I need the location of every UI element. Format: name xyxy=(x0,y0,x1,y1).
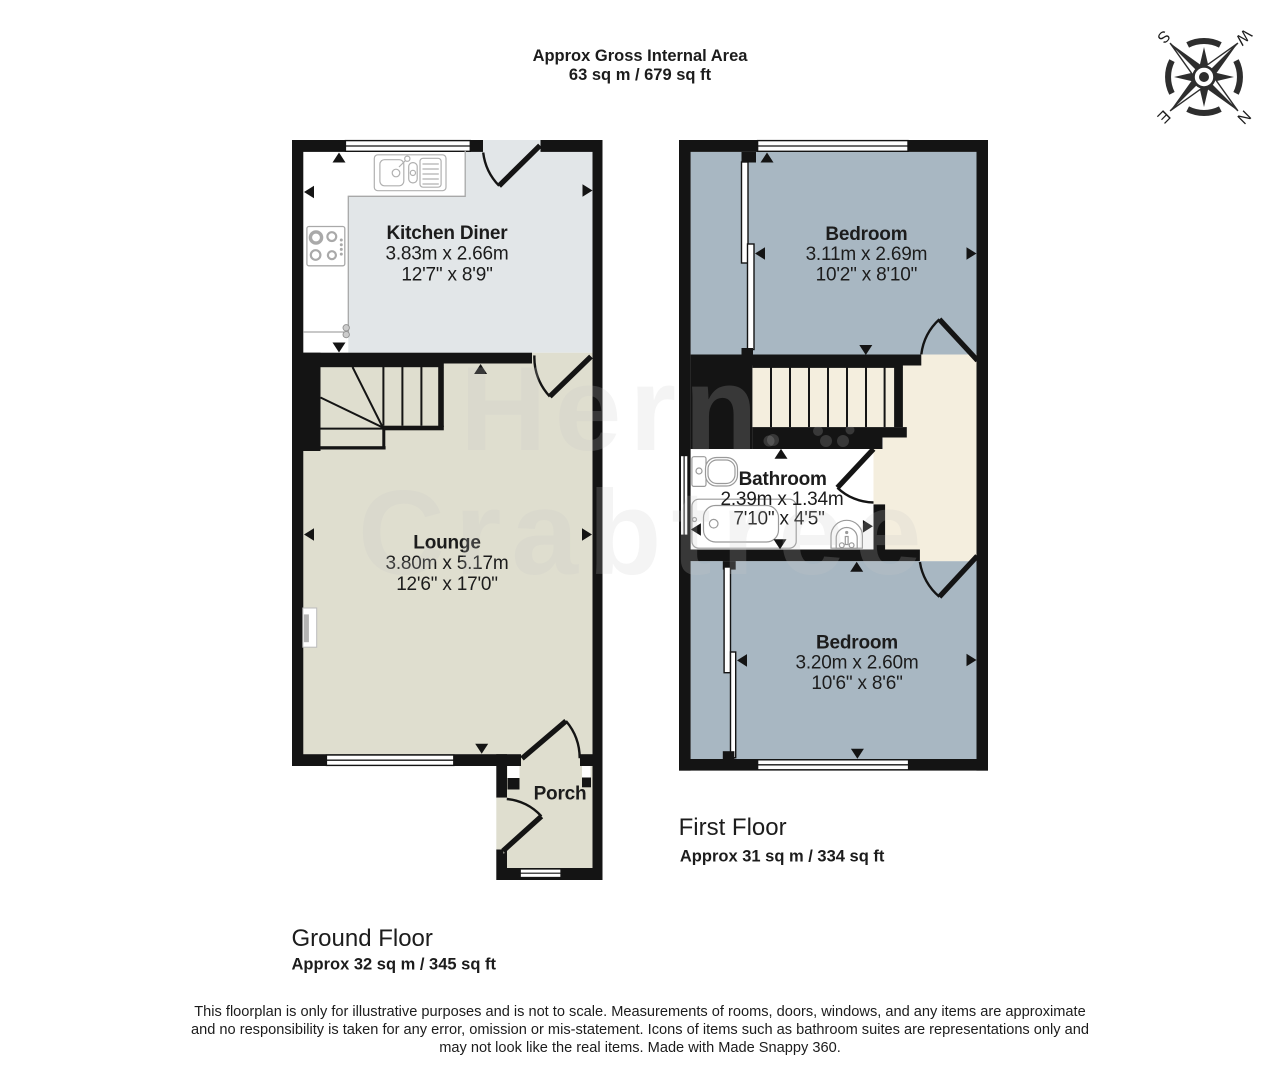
svg-text:Kitchen Diner: Kitchen Diner xyxy=(387,223,509,244)
svg-text:12'7" x 8'9": 12'7" x 8'9" xyxy=(401,265,492,286)
svg-text:Ground Floor: Ground Floor xyxy=(292,925,433,952)
svg-text:3.20m x 2.60m: 3.20m x 2.60m xyxy=(795,653,918,674)
svg-text:First Floor: First Floor xyxy=(679,814,787,841)
svg-text:Approx Gross Internal Area: Approx Gross Internal Area xyxy=(533,47,749,65)
svg-text:Hern: Hern xyxy=(460,342,765,476)
svg-text:Bedroom: Bedroom xyxy=(816,633,898,654)
svg-text:10'2" x 8'10": 10'2" x 8'10" xyxy=(816,265,918,286)
svg-text:Crabtree: Crabtree xyxy=(358,466,932,600)
svg-text:63 sq m / 679 sq ft: 63 sq m / 679 sq ft xyxy=(569,66,712,84)
svg-text:may not look like the real ite: may not look like the real items. Made w… xyxy=(439,1040,841,1056)
svg-text:Approx 32 sq m / 345 sq ft: Approx 32 sq m / 345 sq ft xyxy=(292,956,497,974)
svg-text:3.83m x 2.66m: 3.83m x 2.66m xyxy=(385,244,508,265)
svg-text:Approx 31 sq m / 334 sq ft: Approx 31 sq m / 334 sq ft xyxy=(680,848,885,866)
svg-text:This floorplan is only for ill: This floorplan is only for illustrative … xyxy=(194,1004,1085,1020)
svg-text:and no responsibility is taken: and no responsibility is taken for any e… xyxy=(191,1022,1089,1038)
svg-text:Porch: Porch xyxy=(534,784,587,805)
svg-text:10'6" x 8'6": 10'6" x 8'6" xyxy=(811,673,902,694)
svg-text:3.11m x 2.69m: 3.11m x 2.69m xyxy=(806,244,928,265)
svg-text:Bedroom: Bedroom xyxy=(825,224,907,245)
